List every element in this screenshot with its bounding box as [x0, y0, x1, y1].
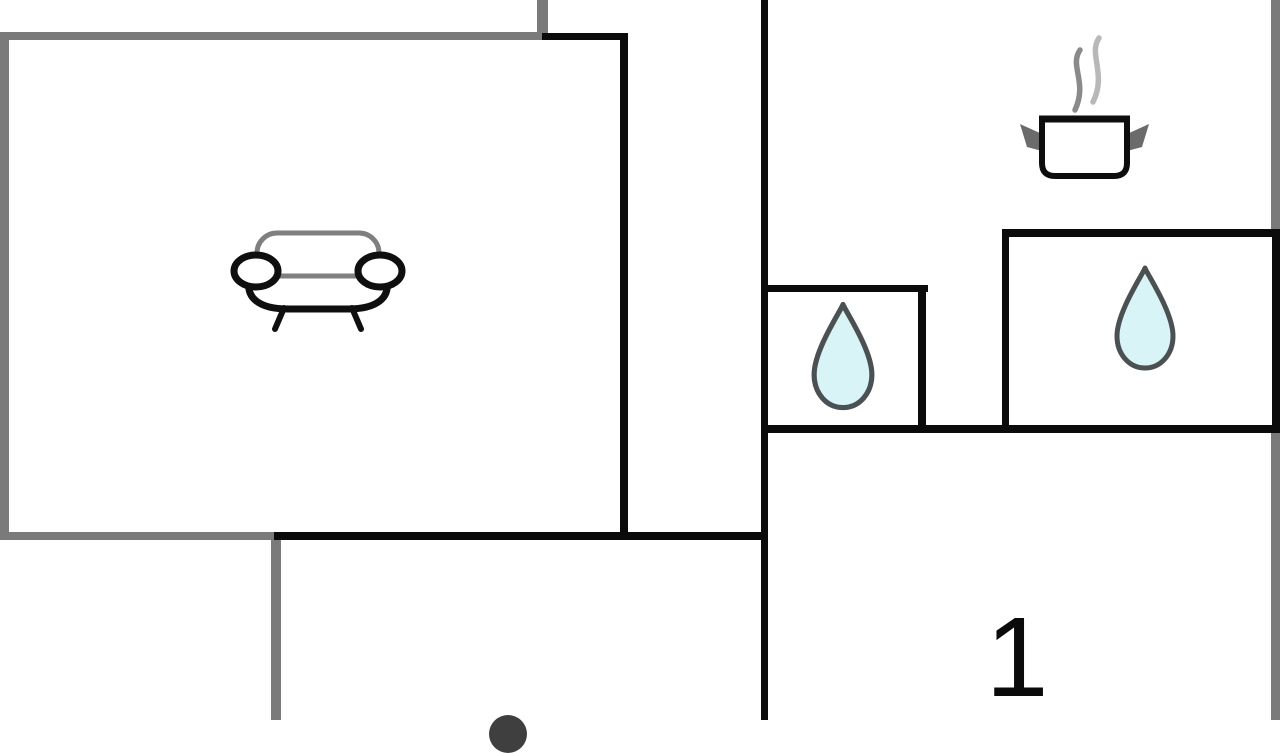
- wall-black: [542, 33, 628, 40]
- wall-black: [1002, 229, 1009, 433]
- wall-gray: [1271, 0, 1280, 232]
- water-drop-icon: [1113, 264, 1177, 372]
- wall-gray: [0, 32, 548, 40]
- wall-gray: [271, 532, 281, 720]
- sofa-armrest-right: [358, 255, 402, 287]
- water-drop-icon: [810, 300, 876, 412]
- partial-round-object: [489, 715, 527, 753]
- wall-black: [1002, 229, 1280, 237]
- steam-line-dark: [1075, 50, 1080, 110]
- sofa-armrest-left: [234, 255, 278, 287]
- pot-body: [1042, 119, 1127, 176]
- wall-gray: [537, 0, 548, 36]
- wall-black: [620, 33, 628, 539]
- steam-line-light: [1093, 38, 1099, 102]
- wall-gray: [1271, 433, 1280, 720]
- room-bottom: [281, 540, 761, 720]
- wall-black: [761, 285, 928, 292]
- wall-black: [1272, 229, 1280, 433]
- pot-handle-left: [1020, 124, 1042, 151]
- sofa-icon: [228, 226, 408, 332]
- wall-gray: [0, 32, 9, 540]
- wall-gray: [0, 532, 282, 540]
- wall-black: [761, 0, 768, 720]
- room-1-number: 1: [947, 599, 1087, 717]
- cooking-pot-icon: [1012, 30, 1157, 180]
- floor-plan: 1: [0, 0, 1280, 720]
- room-hallway: [628, 0, 761, 532]
- wall-black: [918, 285, 926, 433]
- wall-black: [761, 425, 1280, 433]
- pot-handle-right: [1127, 124, 1149, 151]
- wall-black: [274, 532, 768, 540]
